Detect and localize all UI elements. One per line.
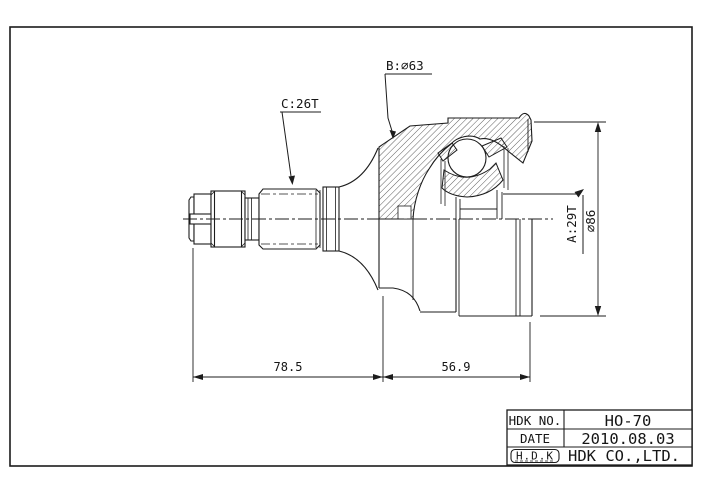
titleblock-company: HDK CO.,LTD. [568,447,680,465]
label-a-29t: A:29T ∅86 [503,189,598,254]
label-c-26t: C:26T [280,96,321,185]
outer-race-exterior [379,219,532,316]
label-dia86-text: ∅86 [583,210,598,233]
technical-drawing: B:∅63 C:26T A:29T ∅86 78.5 56.9 [0,0,720,479]
label-a-text: A:29T [564,205,579,243]
drawing-sheet: B:∅63 C:26T A:29T ∅86 78.5 56.9 [0,0,720,479]
arrowhead [289,176,296,186]
title-block: HDK NO. HO-70 DATE 2010.08.03 H.D.K HDK … [507,410,692,465]
bore-notch [398,206,411,219]
titleblock-label-date: DATE [520,431,550,446]
label-c-text: C:26T [281,96,319,111]
label-b-text: B:∅63 [386,58,424,73]
titleblock-label-hdk-no: HDK NO. [509,413,562,428]
titleblock-value-date: 2010.08.03 [581,430,674,448]
dim-56-9: 56.9 [442,360,471,374]
border-frame [10,27,692,466]
dimension-horizontal: 78.5 56.9 [193,248,530,382]
titleblock-value-part-no: HO-70 [605,412,652,430]
hdk-logo-text: H.D.K [516,450,554,463]
dim-78-5: 78.5 [274,360,303,374]
